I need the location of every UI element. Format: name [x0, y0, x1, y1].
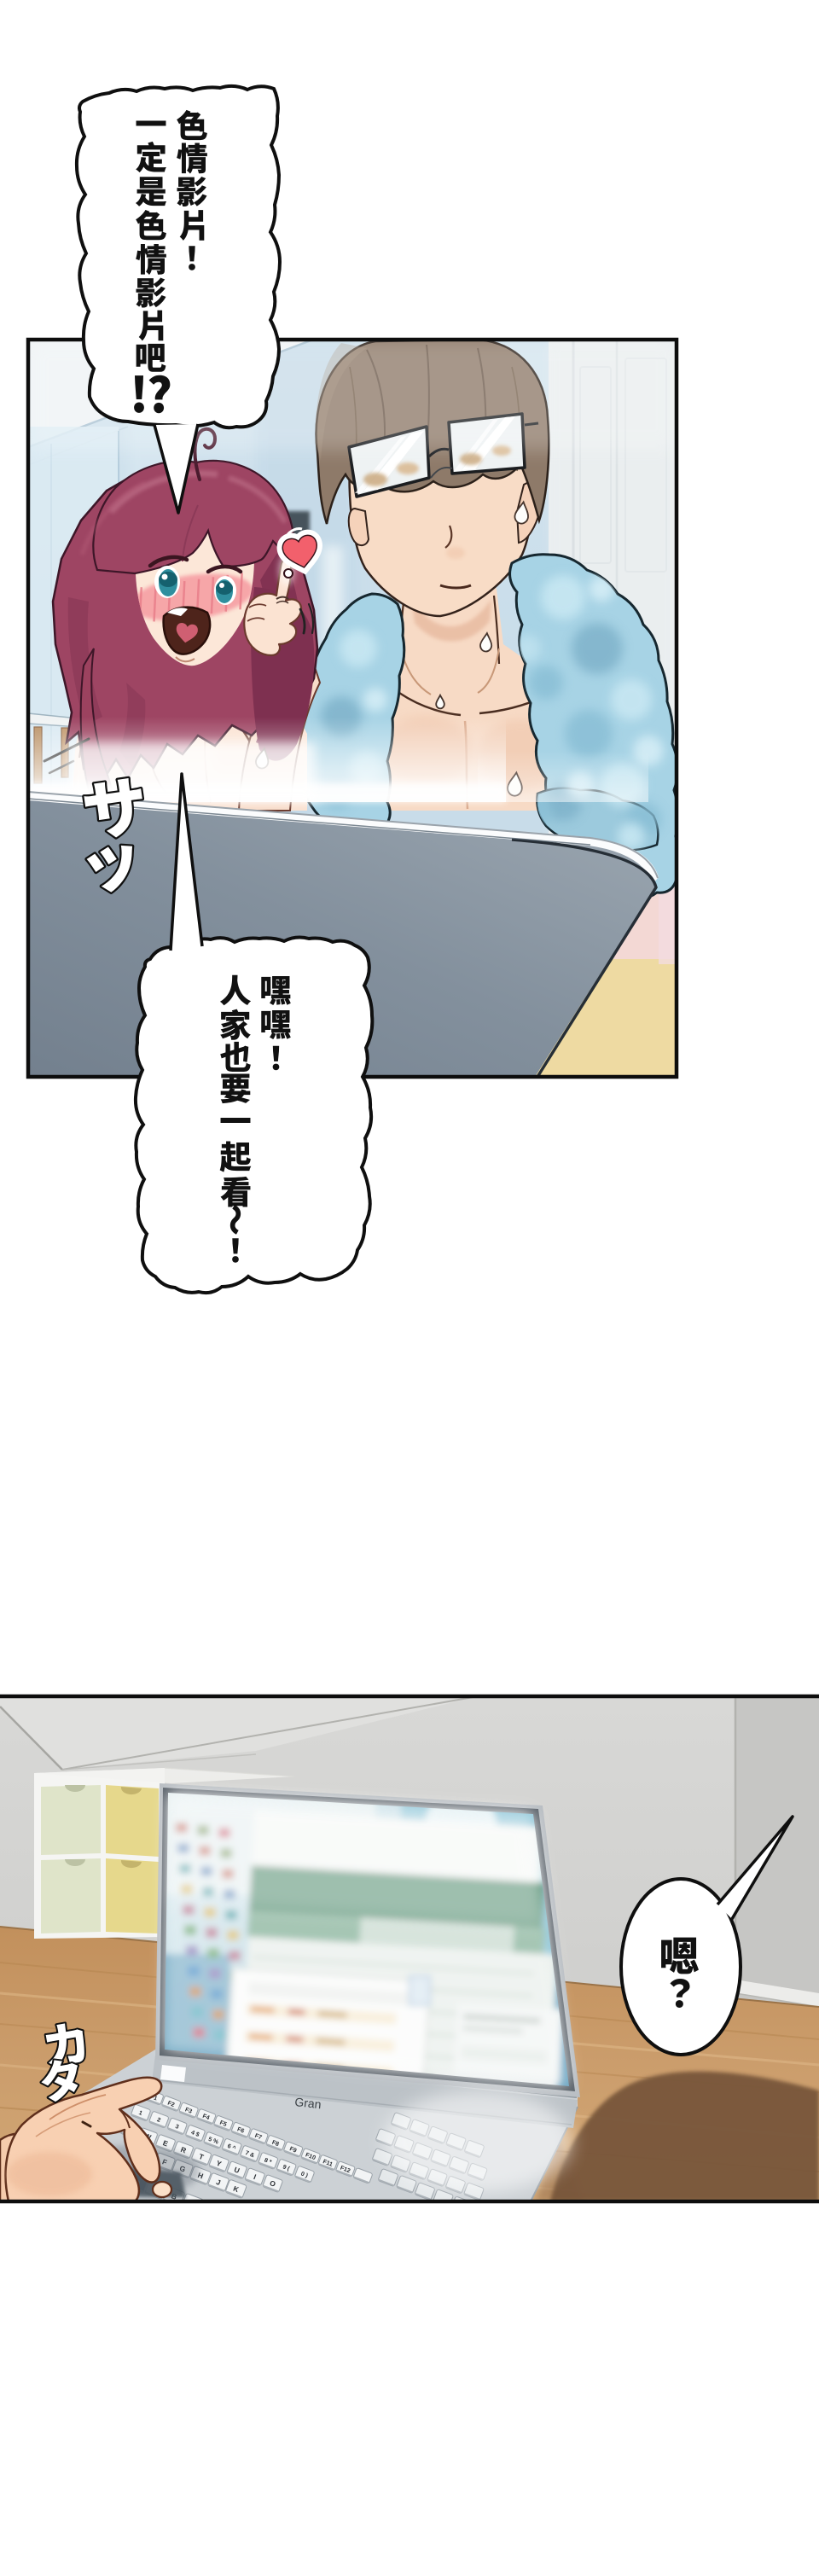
svg-text:Gran: Gran	[294, 2095, 322, 2111]
